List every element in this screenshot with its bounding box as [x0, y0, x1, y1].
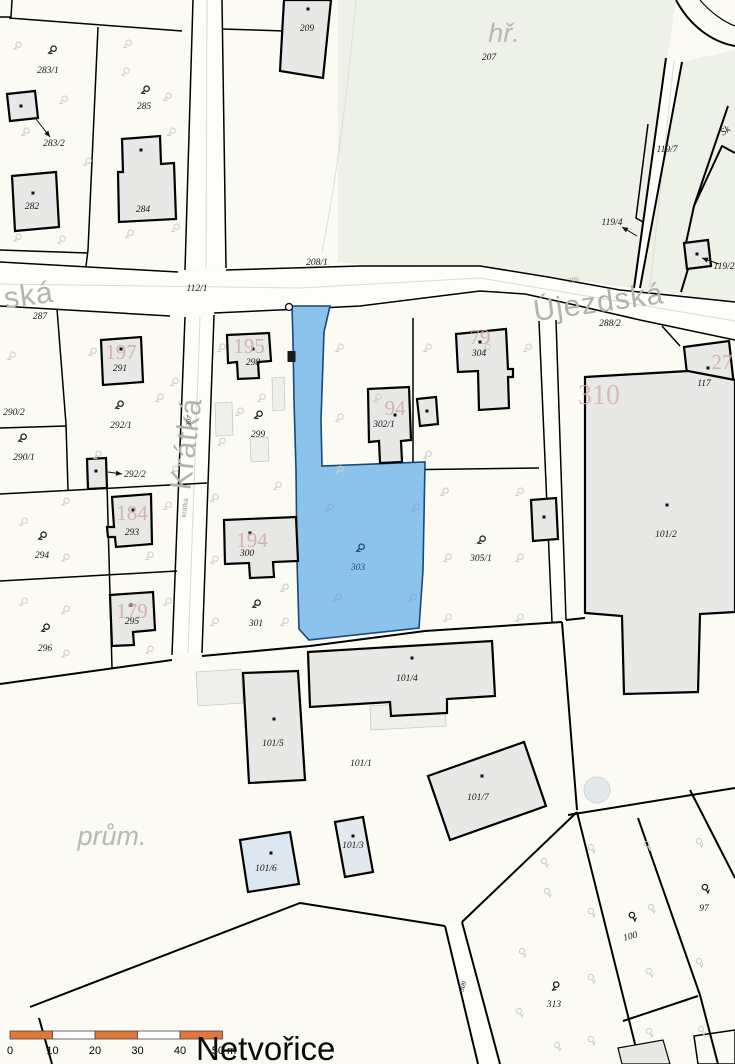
building-annex-305 [531, 498, 558, 541]
building-101-5 [243, 671, 305, 783]
scale-label: 20 [89, 1045, 101, 1057]
scale-label: 0 [7, 1045, 13, 1057]
parcel-label-101-4: 101/4 [396, 674, 418, 684]
parcel-label-298: 298 [246, 358, 261, 368]
cadastral-map-canvas[interactable]: 283/1285283/2282284209hř.207119/7Sk119/4… [0, 0, 735, 1064]
building-point [352, 835, 355, 838]
culvert-marker [288, 351, 296, 362]
parcel-label-287: 287 [33, 312, 49, 322]
parcel-label-288-2: 288/2 [599, 319, 621, 329]
faint-structure [272, 377, 285, 411]
parcel-label-285: 285 [137, 102, 152, 112]
map-viewport: 283/1285283/2282284209hř.207119/7Sk119/4… [0, 0, 735, 1064]
area-label-prumysl: prům. [76, 821, 146, 851]
faint-structure [215, 402, 233, 436]
scale-label: 10 [46, 1045, 58, 1057]
building-number-195: 195 [233, 334, 265, 358]
faint-structure [196, 669, 243, 706]
scale-bar-segment [138, 1031, 181, 1039]
parcel-label-207: 207 [482, 53, 498, 63]
scale-bar-segment [53, 1031, 96, 1039]
parcel-label-290-1: 290/1 [13, 453, 35, 463]
building-point [481, 775, 484, 778]
building-number-310: 310 [578, 380, 620, 411]
parcel-label-101-6: 101/6 [255, 864, 277, 874]
parcel-label-283-1: 283/1 [37, 66, 59, 76]
parcel-label-303: 303 [350, 563, 366, 573]
scale-bar-segment [10, 1031, 53, 1039]
parcel-label-313: 313 [546, 1000, 562, 1010]
building-209 [280, 0, 331, 78]
area-label-hriste: hř. [488, 18, 520, 48]
parcel-label-300: 300 [239, 549, 255, 559]
tank-circle [584, 777, 610, 803]
boundary-point-marker [286, 304, 293, 311]
parcel-label-119-2: 119/2 [714, 262, 735, 272]
faint-structure [250, 437, 269, 462]
parcel-label-305-1: 305/1 [469, 554, 492, 564]
scale-bar-segment [95, 1031, 138, 1039]
building-point [307, 8, 310, 11]
building-point [696, 253, 699, 256]
building-point [270, 852, 273, 855]
parcel-label-296: 296 [38, 644, 53, 654]
parcel-label-209: 209 [300, 24, 315, 34]
parcel-label-101-2: 101/2 [655, 530, 677, 540]
parcel-label-294: 294 [35, 551, 50, 561]
scale-label: 30 [131, 1045, 143, 1057]
parcel-label-117: 117 [697, 379, 712, 389]
parcel-label-119-4: 119/4 [602, 218, 623, 228]
parcel-label-292-1: 292/1 [110, 421, 132, 431]
building-point [20, 105, 23, 108]
parcel-label-295: 295 [125, 617, 140, 627]
scale-label: 40 [174, 1045, 186, 1057]
parcel-label-101-7: 101/7 [467, 793, 490, 803]
parcel-label-304: 304 [471, 349, 487, 359]
parcel-label-282: 282 [25, 202, 40, 212]
parcel-label-208-1: 208/1 [306, 258, 328, 268]
parcel-label-101-5: 101/5 [262, 739, 284, 749]
street-label-ska: ská [2, 276, 56, 316]
parcel-label-284: 284 [136, 205, 151, 215]
parcel-label-97: 97 [699, 904, 710, 914]
building-point [666, 504, 669, 507]
parcel-label-101-1: 101/1 [350, 759, 372, 769]
parcel-label-301: 301 [248, 619, 263, 629]
parcel-label-112-1: 112/1 [187, 284, 208, 294]
parcel-label-119-7: 119/7 [657, 145, 679, 155]
building-point [411, 657, 414, 660]
parcel-label-293: 293 [125, 528, 140, 538]
building-point [707, 367, 710, 370]
building-number-27: 27 [712, 350, 733, 374]
parcel-label-101-3: 101/3 [342, 841, 364, 851]
building-292-2 [87, 458, 107, 489]
building-point [426, 410, 429, 413]
building-number-197: 197 [105, 340, 137, 364]
building-point [273, 718, 276, 721]
building-point [32, 192, 35, 195]
parcel-label-283-2: 283/2 [43, 139, 65, 149]
parcel-label-302-1: 302/1 [372, 420, 395, 430]
building-point [140, 149, 143, 152]
parcel-label-299: 299 [251, 430, 266, 440]
parcel-label-292-2: 292/2 [124, 470, 146, 480]
building-number-184: 184 [116, 501, 148, 525]
parcel-label-291: 291 [113, 364, 127, 374]
building-number-79: 79 [470, 325, 491, 349]
map-title: Netvořice [196, 1030, 335, 1064]
parcel-label-307: 307 [184, 414, 194, 427]
parcel-label-290-2: 290/2 [3, 408, 25, 418]
building-point [95, 470, 98, 473]
building-number-94: 94 [385, 396, 407, 420]
building-point [543, 516, 546, 519]
building-101-6 [240, 832, 299, 892]
